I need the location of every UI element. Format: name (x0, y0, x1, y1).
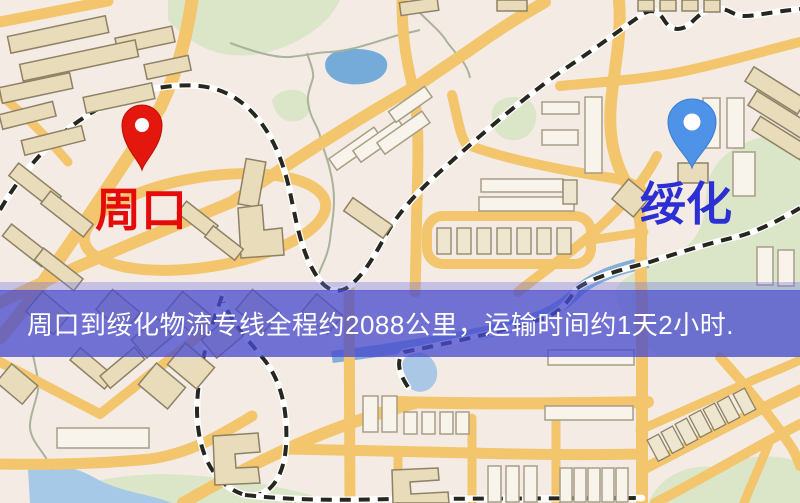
destination-label: 绥化 (640, 178, 732, 230)
logistics-route-map: 周口 绥化 周口到绥化物流专线全程约2088公里，运输时间约1天2小时. (0, 0, 800, 503)
route-info-text: 周口到绥化物流专线全程约2088公里，运输时间约1天2小时. (0, 305, 734, 342)
origin-label: 周口 (95, 184, 187, 236)
map-canvas[interactable]: 周口 绥化 (0, 0, 800, 503)
route-info-banner: 周口到绥化物流专线全程约2088公里，运输时间约1天2小时. (0, 290, 800, 357)
